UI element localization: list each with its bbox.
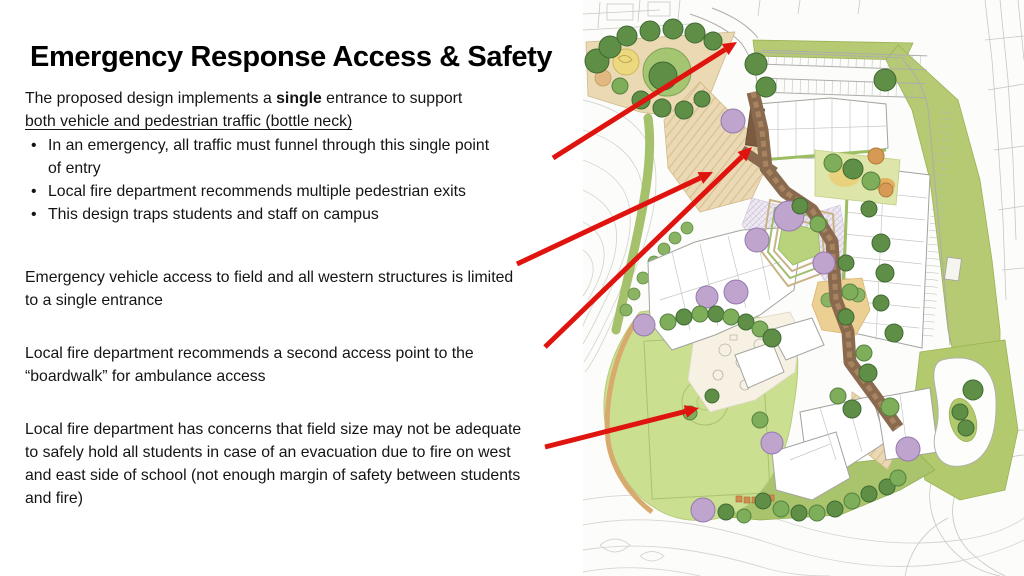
paragraph-emergency-vehicle-access: Emergency vehicle access to field and al… [25, 266, 525, 312]
intro-bold-word: single [276, 90, 322, 107]
intro-underlined-line: both vehicle and pedestrian traffic (bot… [25, 110, 525, 133]
slide-title: Emergency Response Access & Safety [30, 41, 570, 74]
text-panel: Emergency Response Access & Safety The p… [0, 0, 575, 576]
paragraph-boardwalk-access: Local fire department recommends a secon… [25, 342, 525, 388]
bullet-item: This design traps students and staff on … [25, 203, 503, 226]
slide: Emergency Response Access & Safety The p… [0, 0, 1024, 576]
intro-text-post: entrance to support [322, 90, 463, 107]
bullet-item: In an emergency, all traffic must funnel… [25, 134, 503, 180]
bullet-item: Local fire department recommends multipl… [25, 180, 503, 203]
intro-paragraph: The proposed design implements a single … [25, 87, 525, 133]
bullet-list: In an emergency, all traffic must funnel… [25, 134, 503, 226]
dropoff-loop [934, 358, 996, 466]
paragraph-field-size-concern: Local fire department has concerns that … [25, 418, 525, 510]
intro-text-pre: The proposed design implements a [25, 90, 276, 107]
